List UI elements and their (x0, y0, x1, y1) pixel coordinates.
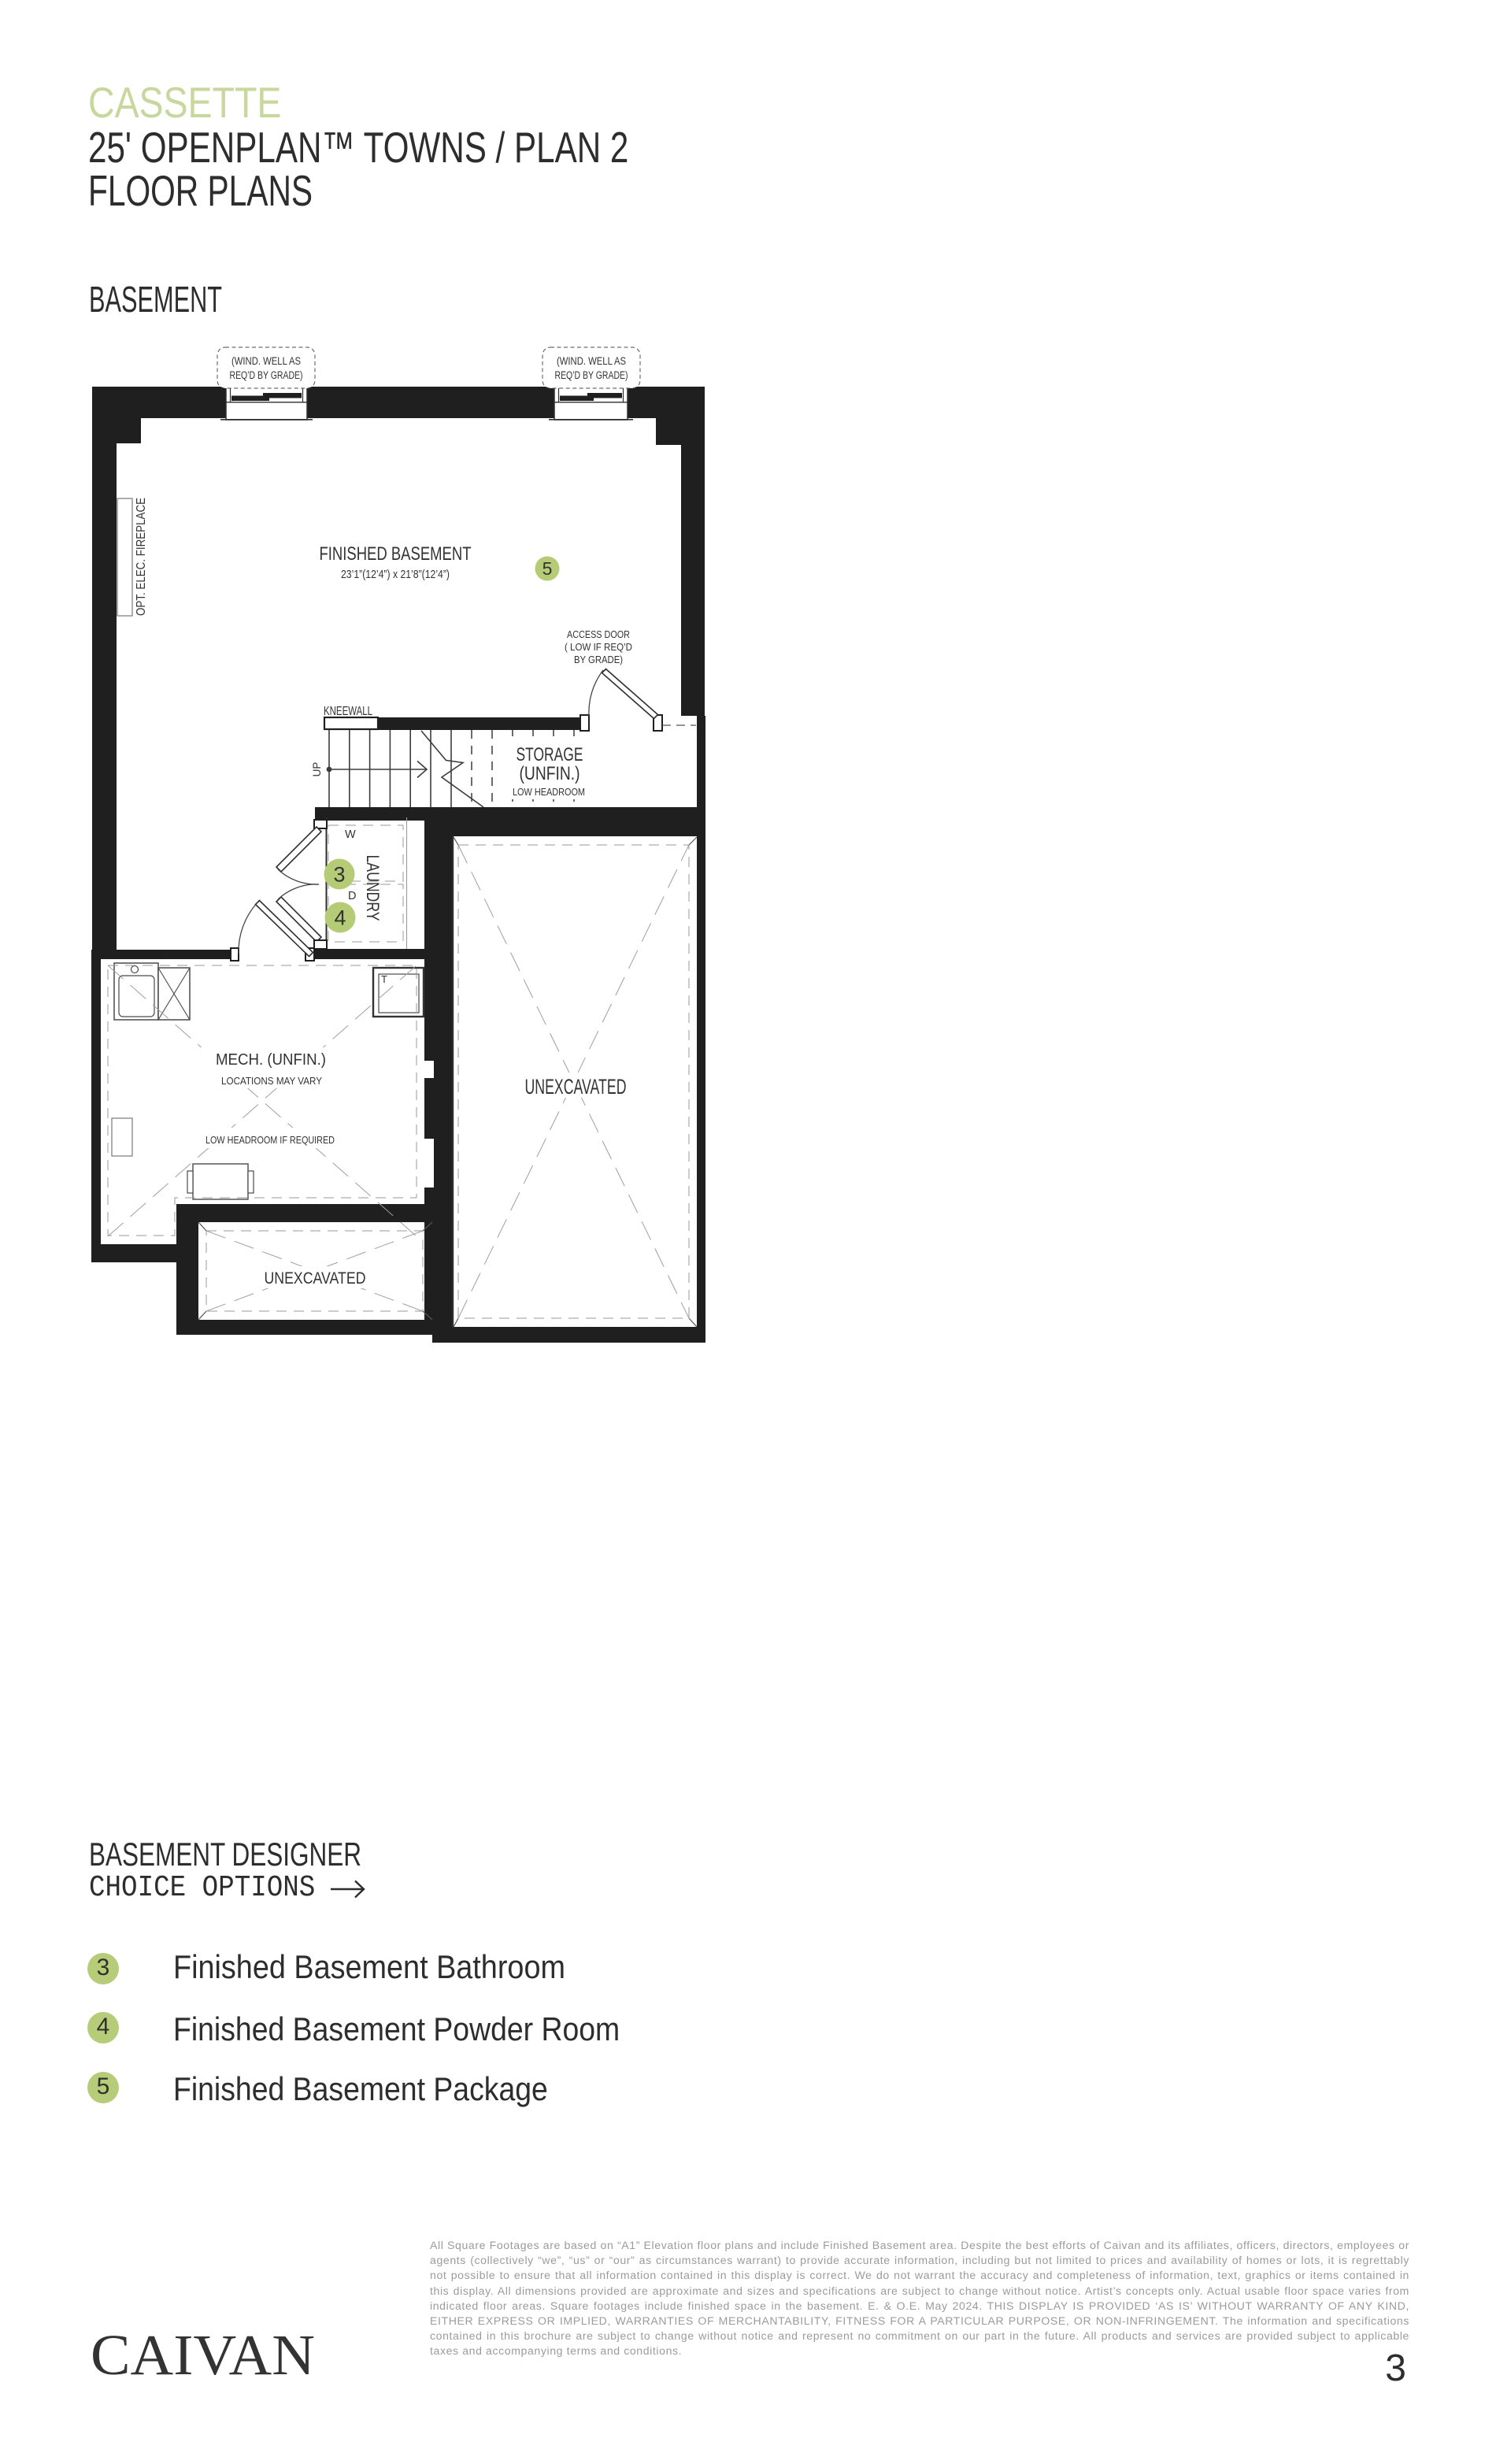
svg-text:KNEEWALL: KNEEWALL (324, 705, 372, 718)
svg-text:LAUNDRY: LAUNDRY (363, 855, 383, 921)
svg-text:STORAGE: STORAGE (517, 744, 583, 765)
svg-text:(WIND. WELL AS: (WIND. WELL AS (231, 355, 301, 367)
svg-text:LOCATIONS MAY VARY: LOCATIONS MAY VARY (221, 1075, 322, 1087)
svg-text:3: 3 (333, 863, 345, 887)
svg-text:4: 4 (334, 906, 346, 930)
svg-text:D: D (348, 890, 356, 902)
svg-text:LOW HEADROOM IF REQUIRED: LOW HEADROOM IF REQUIRED (206, 1134, 335, 1146)
svg-text:T: T (381, 973, 387, 985)
svg-text:5: 5 (542, 558, 553, 579)
svg-text:UP: UP (311, 762, 323, 777)
svg-text:23’1”(12’4”) x 21’8”(12’4”): 23’1”(12’4”) x 21’8”(12’4”) (341, 568, 450, 581)
svg-text:OPT. ELEC. FIREPLACE: OPT. ELEC. FIREPLACE (135, 498, 148, 616)
svg-text:CAIVAN: CAIVAN (91, 2333, 315, 2384)
svg-text:ACCESS DOOR: ACCESS DOOR (567, 628, 630, 640)
svg-text:(WIND. WELL AS: (WIND. WELL AS (557, 355, 626, 367)
svg-text:BY GRADE): BY GRADE) (574, 654, 623, 665)
svg-text:UNEXCAVATED: UNEXCAVATED (525, 1075, 627, 1099)
svg-text:( LOW IF REQ’D: ( LOW IF REQ’D (565, 641, 632, 653)
svg-text:REQ’D BY GRADE): REQ’D BY GRADE) (230, 369, 303, 381)
svg-text:FINISHED BASEMENT: FINISHED BASEMENT (320, 543, 472, 565)
svg-text:(UNFIN.): (UNFIN.) (520, 763, 580, 784)
svg-text:W: W (345, 828, 356, 841)
svg-text:LOW HEADROOM: LOW HEADROOM (513, 786, 585, 798)
svg-text:REQ’D BY GRADE): REQ’D BY GRADE) (555, 369, 628, 381)
svg-text:UNEXCAVATED: UNEXCAVATED (265, 1269, 366, 1288)
svg-text:MECH. (UNFIN.): MECH. (UNFIN.) (216, 1051, 326, 1069)
